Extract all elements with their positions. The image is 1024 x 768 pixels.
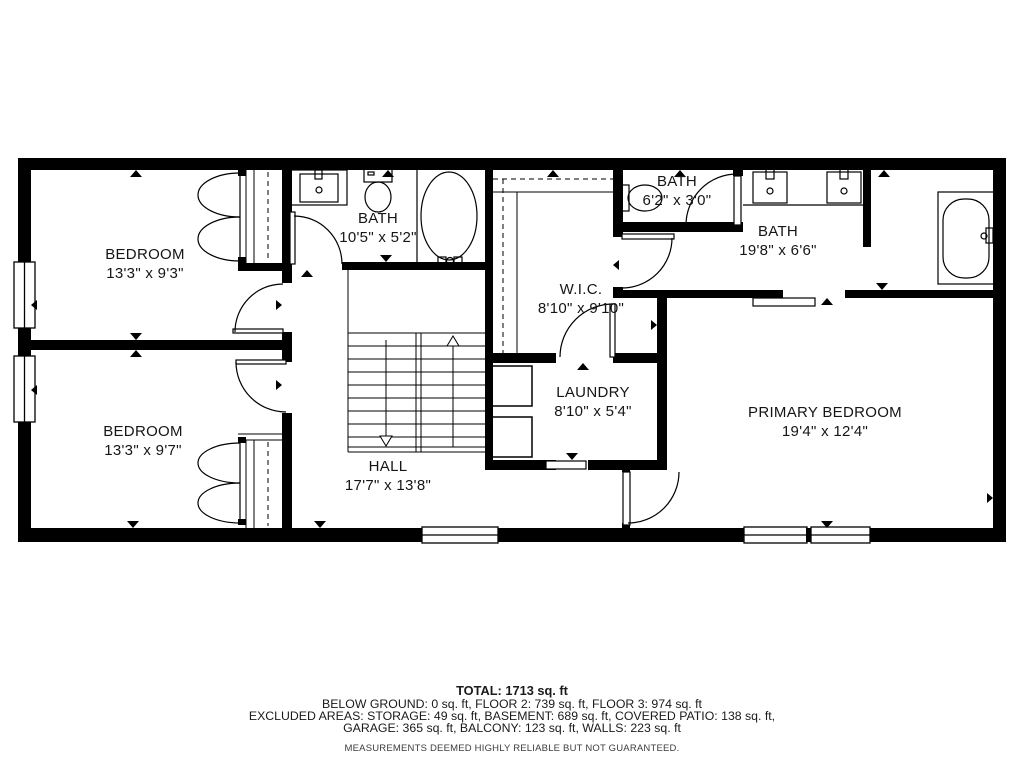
bathtub-primary-bath xyxy=(938,192,994,284)
wall-top xyxy=(18,158,1006,170)
wall-bigbath-bottom-right xyxy=(845,290,995,298)
floor-plan-drawing xyxy=(0,0,1024,768)
wall-smallbath-right-a xyxy=(733,170,743,176)
washer xyxy=(492,366,532,406)
wall-bath1-bottom xyxy=(342,262,493,270)
wall-laundry-right xyxy=(657,298,667,470)
wall-hall-b xyxy=(282,332,292,362)
room-dimensions: 8'10" x 9'10" xyxy=(538,300,624,319)
wall-smallbath-bottom xyxy=(613,222,743,232)
window-hall-bottom xyxy=(422,527,498,543)
wall-closet1-stub-bottom xyxy=(238,257,246,263)
total-area: TOTAL: 1713 sq. ft xyxy=(0,685,1024,698)
room-dimensions: 17'7" x 13'8" xyxy=(345,477,431,496)
room-label-bath-2: BATH 6'2" x 3'0" xyxy=(643,173,712,210)
room-name: BATH xyxy=(643,173,712,192)
room-dimensions: 13'3" x 9'7" xyxy=(103,442,183,461)
floor-areas: BELOW GROUND: 0 sq. ft, FLOOR 2: 739 sq.… xyxy=(0,698,1024,710)
window-bedroom2-left xyxy=(14,356,35,422)
vanity-primary-bath xyxy=(743,169,863,205)
wall-wic-bottom-left xyxy=(485,353,556,363)
room-dimensions: 19'8" x 6'6" xyxy=(739,242,817,261)
room-dimensions: 19'4" x 12'4" xyxy=(748,423,902,442)
room-label-bath-1: BATH 10'5" x 5'2" xyxy=(339,210,417,247)
sliding-door-primary-bath xyxy=(753,298,815,306)
bathtub-bath1 xyxy=(417,170,477,265)
room-name: LAUNDRY xyxy=(554,384,632,403)
area-summary: TOTAL: 1713 sq. ft BELOW GROUND: 0 sq. f… xyxy=(0,685,1024,754)
wall-bedroom-divider xyxy=(18,340,292,350)
sink-bath1 xyxy=(290,170,347,205)
room-label-primary-bedroom: PRIMARY BEDROOM 19'4" x 12'4" xyxy=(748,404,902,441)
wall-closet1-bottom xyxy=(238,263,292,271)
window-bedroom1-left xyxy=(14,262,35,328)
room-label-laundry: LAUNDRY 8'10" x 5'4" xyxy=(554,384,632,421)
room-name: BEDROOM xyxy=(105,246,185,265)
bifold-doors-closet1 xyxy=(198,173,240,261)
wall-laundry-bottom-left xyxy=(485,460,556,470)
room-name: HALL xyxy=(345,458,431,477)
closet1-shelving xyxy=(246,170,268,263)
floor-plan-page: BEDROOM 13'3" x 9'3" BATH 10'5" x 5'2" W… xyxy=(0,0,1024,768)
room-label-bedroom-1: BEDROOM 13'3" x 9'3" xyxy=(105,246,185,283)
room-name: BATH xyxy=(739,223,817,242)
room-label-bath-3: BATH 19'8" x 6'6" xyxy=(739,223,817,260)
wall-right xyxy=(993,158,1006,542)
excluded-areas-2: GARAGE: 365 sq. ft, BALCONY: 123 sq. ft,… xyxy=(0,722,1024,734)
room-name: W.I.C. xyxy=(538,281,624,300)
walls xyxy=(18,158,1006,542)
wic-shelving xyxy=(493,179,613,353)
window-primary-bottom-1 xyxy=(744,527,807,543)
stairs-down-arrow xyxy=(380,340,392,446)
room-dimensions: 6'2" x 3'0" xyxy=(643,192,712,211)
stairs-up-arrow xyxy=(447,336,459,447)
bifold-doors-closet2 xyxy=(198,443,240,523)
wall-hall-c xyxy=(282,413,292,528)
windows xyxy=(14,262,870,543)
room-name: PRIMARY BEDROOM xyxy=(748,404,902,423)
wall-left-c xyxy=(18,422,31,542)
room-label-wic: W.I.C. 8'10" x 9'10" xyxy=(538,281,624,318)
room-name: BEDROOM xyxy=(103,423,183,442)
wall-closet2-stub-bottom xyxy=(238,519,246,525)
dryer xyxy=(492,417,532,457)
sliding-door-laundry xyxy=(546,461,586,469)
room-label-hall: HALL 17'7" x 13'8" xyxy=(345,458,431,495)
closet2-shelving xyxy=(238,434,284,528)
stairs xyxy=(348,270,487,452)
wall-bigbath-bottom-left xyxy=(613,290,783,298)
window-mullion xyxy=(806,528,811,542)
disclaimer: MEASUREMENTS DEEMED HIGHLY RELIABLE BUT … xyxy=(0,743,1024,754)
room-dimensions: 10'5" x 5'2" xyxy=(339,229,417,248)
room-label-bedroom-2: BEDROOM 13'3" x 9'7" xyxy=(103,423,183,460)
wall-left-a xyxy=(18,158,31,263)
window-primary-bottom-2 xyxy=(811,527,870,543)
wall-vanity-stub xyxy=(863,170,871,247)
door-primary-bedroom xyxy=(623,472,679,525)
door-bedroom1 xyxy=(233,284,283,333)
room-dimensions: 13'3" x 9'3" xyxy=(105,265,185,284)
door-bath1 xyxy=(290,212,342,264)
wall-primary-door-stub-top xyxy=(622,466,630,472)
room-name: BATH xyxy=(339,210,417,229)
room-dimensions: 8'10" x 5'4" xyxy=(554,403,632,422)
door-primary-bath xyxy=(622,234,674,288)
